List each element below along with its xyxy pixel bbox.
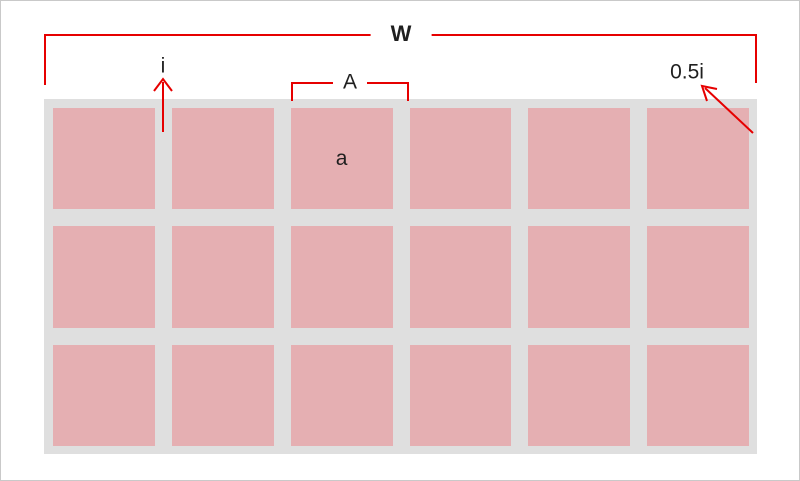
panel-cell xyxy=(647,226,749,327)
panel-cell xyxy=(291,345,393,446)
gap-label: i xyxy=(161,54,166,77)
panel-cell xyxy=(53,345,155,446)
panel-cell xyxy=(647,345,749,446)
pitch-label: A xyxy=(333,68,367,95)
diagram-canvas: a W A i 0.5i xyxy=(0,0,800,481)
panel-grid: a xyxy=(44,99,757,454)
panel-cell xyxy=(528,108,630,209)
panel-cell xyxy=(172,226,274,327)
gap-arrow-head-icon xyxy=(154,79,172,91)
panel-cell xyxy=(410,345,512,446)
panel-cell xyxy=(647,108,749,209)
panel-size-label: a xyxy=(336,148,348,169)
panel-cell xyxy=(291,226,393,327)
panel-cell xyxy=(410,226,512,327)
panel-cell xyxy=(172,108,274,209)
panel-cell-a: a xyxy=(291,108,393,209)
panel-cell xyxy=(53,108,155,209)
panel-cell xyxy=(528,226,630,327)
panel-cell xyxy=(172,345,274,446)
panel-cell xyxy=(528,345,630,446)
total-width-label: W xyxy=(371,20,432,48)
panel-cell xyxy=(410,108,512,209)
panel-cell xyxy=(53,226,155,327)
edge-margin-label: 0.5i xyxy=(670,60,704,83)
